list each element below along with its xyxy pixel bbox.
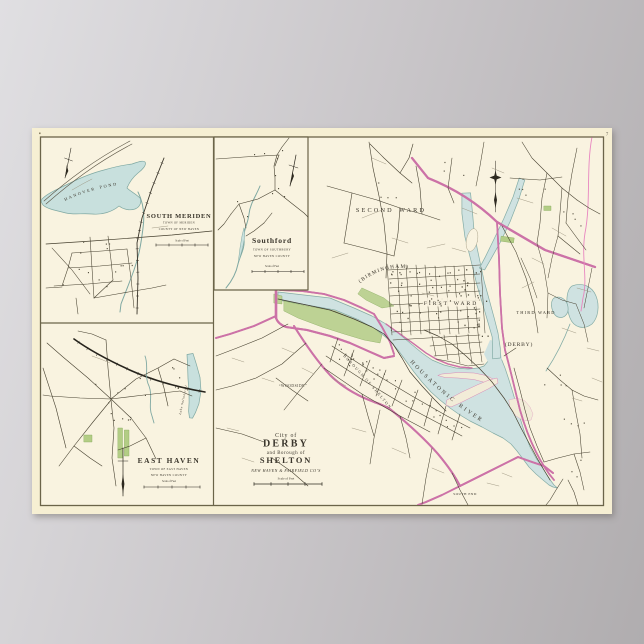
svg-text:“WOODSIDE”: “WOODSIDE”: [279, 383, 307, 388]
svg-text:TOWN OF EAST HAVEN: TOWN OF EAST HAVEN: [150, 467, 189, 471]
svg-text:Scale of Feet: Scale of Feet: [175, 240, 189, 243]
svg-text:NEW HAVEN COUNTY: NEW HAVEN COUNTY: [151, 473, 188, 477]
svg-text:NEW HAVEN COUNTY: NEW HAVEN COUNTY: [254, 254, 291, 258]
svg-text:SOUTH END: SOUTH END: [453, 492, 477, 496]
svg-text:COUNTY OF NEW HAVEN: COUNTY OF NEW HAVEN: [159, 228, 200, 231]
svg-text:EAST HAVEN: EAST HAVEN: [138, 456, 201, 465]
svg-text:THIRD WARD: THIRD WARD: [516, 310, 555, 315]
svg-text:SECOND WARD: SECOND WARD: [356, 207, 426, 214]
svg-text:DERBY: DERBY: [263, 439, 309, 450]
svg-text:SHELTON: SHELTON: [260, 456, 312, 465]
svg-text:Southford: Southford: [252, 236, 292, 245]
svg-text:7: 7: [606, 132, 609, 137]
svg-text:TOWN OF SOUTHBURY: TOWN OF SOUTHBURY: [253, 248, 292, 252]
svg-text:FIRST WARD: FIRST WARD: [424, 301, 479, 307]
svg-text:Scale of Feet: Scale of Feet: [278, 477, 295, 481]
svg-text:Scale of Feet: Scale of Feet: [162, 480, 176, 483]
svg-text:SOUTH MERIDEN: SOUTH MERIDEN: [147, 213, 212, 220]
svg-text:TOWN OF MERIDEN: TOWN OF MERIDEN: [163, 222, 195, 225]
svg-text:(DERBY): (DERBY): [505, 341, 533, 348]
svg-text:NEW HAVEN & FAIRFIELD CO’S: NEW HAVEN & FAIRFIELD CO’S: [250, 468, 321, 473]
svg-text:Scale of Feet: Scale of Feet: [265, 265, 279, 268]
